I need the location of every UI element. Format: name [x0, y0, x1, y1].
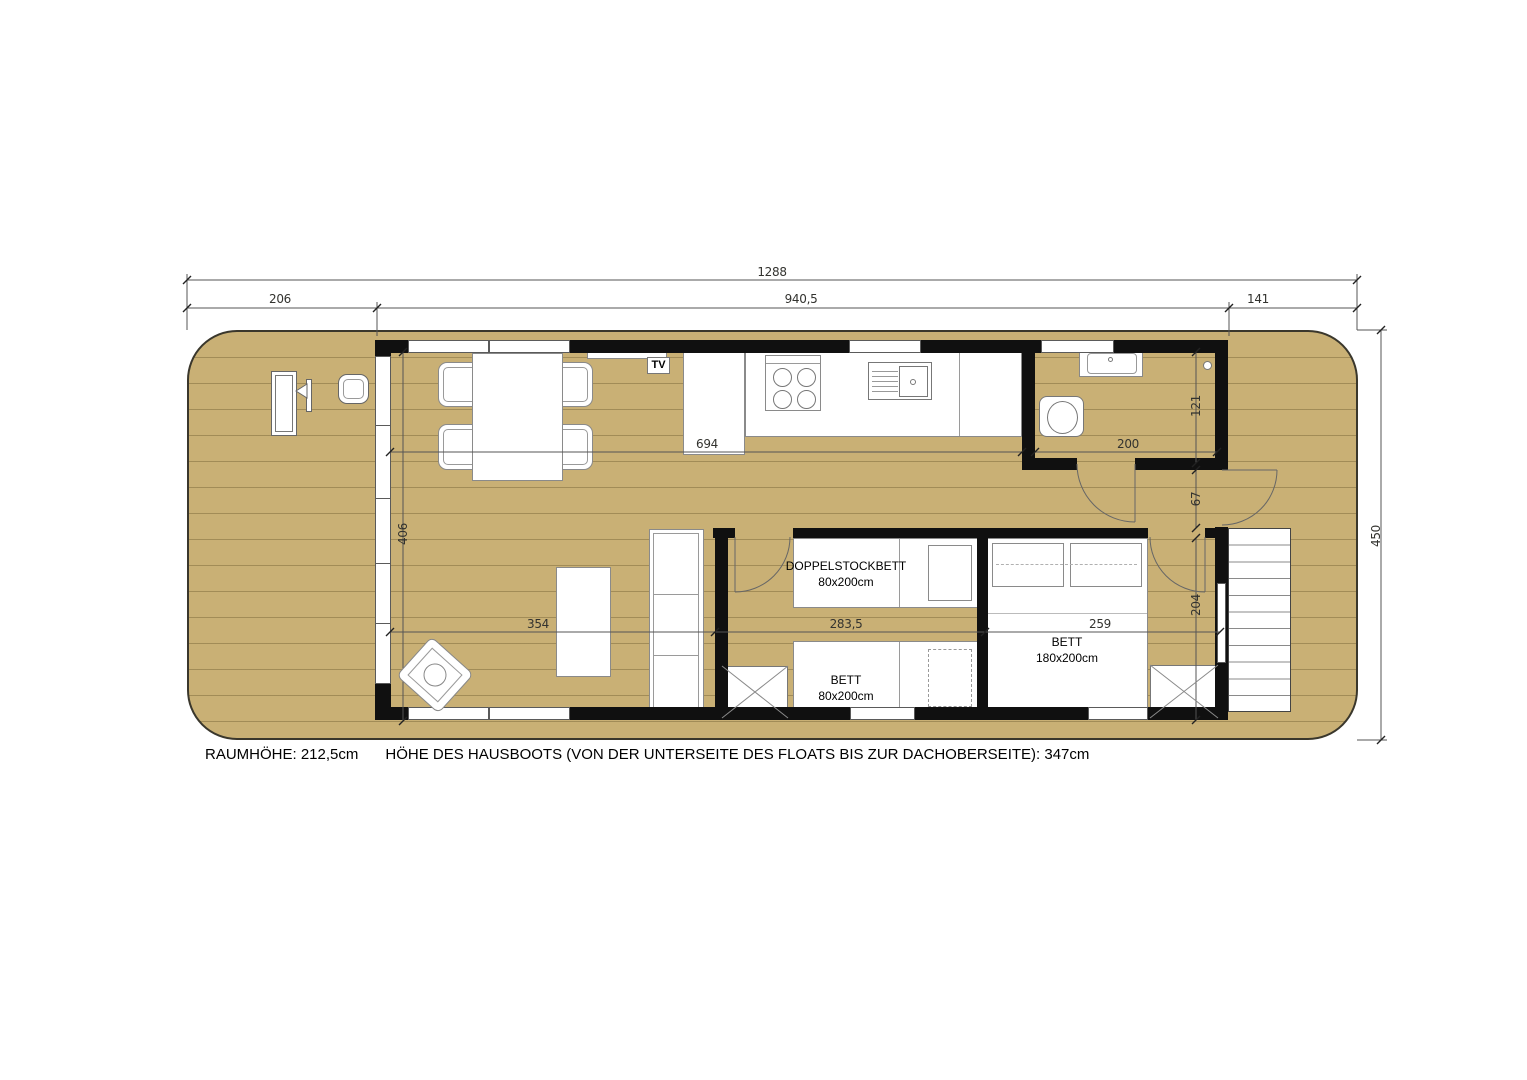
dim-bedroom-width: 204 [1189, 594, 1203, 616]
dim-living-kitchen: 694 [696, 437, 718, 451]
counter-seam [959, 351, 960, 436]
dining-table [472, 353, 563, 481]
window [849, 340, 921, 353]
stove-burner [773, 390, 792, 409]
dim-living-zone: 354 [527, 617, 549, 631]
blanket-fold-line [986, 613, 1147, 614]
bathroom-washbasin [1079, 349, 1143, 377]
sink-faucet-dot [910, 379, 916, 385]
ceiling-light-dot [1203, 361, 1212, 370]
wall-bathroom [1135, 458, 1215, 470]
wall [570, 707, 850, 720]
deck-chair [338, 374, 369, 404]
wall-bathroom [1022, 458, 1077, 470]
pillow-dashed-line [996, 564, 1137, 565]
wall [1114, 340, 1228, 353]
double-bed-size: 180x200cm [1036, 650, 1098, 666]
toilet [1039, 396, 1084, 437]
bed-pillow [992, 543, 1064, 587]
wall-bedroom [793, 528, 1148, 538]
wall [570, 340, 849, 353]
washbasin-bowl [1087, 353, 1137, 374]
double-bed-label: BETT 180x200cm [1036, 634, 1098, 666]
stairs [1228, 528, 1291, 712]
stove [765, 355, 821, 411]
window-mullion [376, 425, 390, 426]
dim-master-room: 259 [1089, 617, 1111, 631]
sofa-cushion [653, 533, 699, 595]
window-side [1217, 583, 1226, 663]
window [489, 707, 570, 720]
dim-kids-room: 283,5 [830, 617, 863, 631]
plan-notes: RAUMHÖHE: 212,5cmHÖHE DES HAUSBOOTS (VON… [205, 746, 1089, 763]
wall [915, 707, 1088, 720]
stove-burner [797, 368, 816, 387]
window [408, 340, 489, 353]
bed-pillow-dashed [928, 649, 972, 707]
room-height-note: RAUMHÖHE: 212,5cm [205, 746, 358, 763]
window-glass-front [375, 356, 391, 684]
window-mullion [376, 498, 390, 499]
bed-head-line [899, 642, 900, 715]
washbasin-faucet-dot [1108, 357, 1113, 362]
wall-bathroom [1022, 340, 1035, 470]
window-bathroom [1041, 340, 1114, 353]
wall [375, 684, 391, 720]
sofa [649, 529, 704, 719]
dim-rear-deck: 141 [1247, 292, 1269, 306]
bunk-bed-label: DOPPELSTOCKBETT 80x200cm [786, 558, 906, 590]
window [408, 707, 489, 720]
wall [375, 340, 391, 356]
stove-panel-line [766, 363, 820, 364]
stove-burner [773, 368, 792, 387]
sofa-cushion [653, 594, 699, 656]
deck-table [271, 371, 297, 436]
dim-bathroom-length: 200 [1117, 437, 1139, 451]
single-bed-name: BETT [818, 672, 873, 688]
bunk-bed-size: 80x200cm [786, 574, 906, 590]
bed-pillow [1070, 543, 1142, 587]
dim-bathroom-width: 121 [1189, 395, 1203, 417]
dim-hallway-width: 67 [1189, 492, 1203, 507]
tv-label: TV [647, 357, 670, 374]
window [1088, 707, 1148, 720]
toilet-bowl [1047, 401, 1078, 434]
double-bed-name: BETT [1036, 634, 1098, 650]
dim-front-deck: 206 [269, 292, 291, 306]
wall-bedroom [1205, 528, 1215, 538]
deck-table-post [306, 379, 312, 412]
single-bed-label: BETT 80x200cm [818, 672, 873, 704]
wall-partition [977, 528, 988, 720]
window [850, 707, 915, 720]
boat-height-note: HÖHE DES HAUSBOOTS (VON DER UNTERSEITE D… [385, 746, 1089, 763]
dim-living-width: 406 [396, 523, 410, 545]
sink-drainboard [872, 367, 898, 396]
double-bed [985, 538, 1148, 718]
bunk-bed-name: DOPPELSTOCKBETT [786, 558, 906, 574]
floor-plan-canvas: 1288 206 940,5 141 450 694 200 406 121 6… [0, 0, 1527, 1080]
coffee-table [556, 567, 611, 677]
dim-cabin-length: 940,5 [785, 292, 818, 306]
window-mullion [376, 623, 390, 624]
window [489, 340, 570, 353]
dim-overall-length: 1288 [757, 265, 786, 279]
single-bed-size: 80x200cm [818, 688, 873, 704]
wall [1215, 340, 1228, 470]
stove-burner [797, 390, 816, 409]
bed-pillow [928, 545, 972, 601]
dim-overall-width: 450 [1369, 525, 1383, 547]
wall-partition [715, 528, 728, 720]
window-mullion [376, 563, 390, 564]
kitchen-sink [868, 362, 932, 400]
